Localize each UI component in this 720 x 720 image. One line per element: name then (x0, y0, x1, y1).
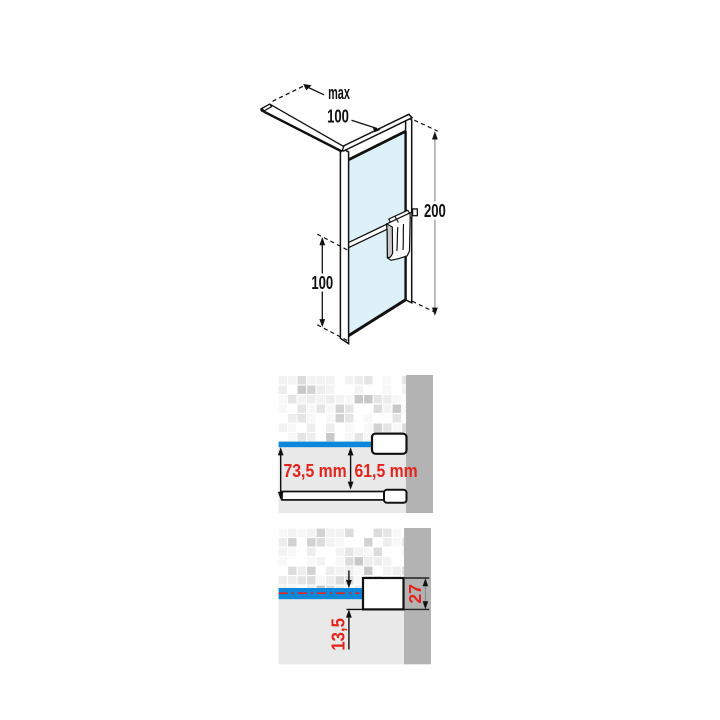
svg-text:200: 200 (424, 202, 446, 222)
svg-text:100: 100 (327, 107, 349, 127)
svg-text:61,5 mm: 61,5 mm (355, 459, 418, 481)
svg-text:27: 27 (405, 584, 425, 604)
svg-text:73,5 mm: 73,5 mm (283, 459, 346, 481)
svg-text:max: max (328, 83, 350, 104)
svg-text:13,5: 13,5 (328, 618, 349, 651)
svg-text:100: 100 (311, 274, 333, 294)
